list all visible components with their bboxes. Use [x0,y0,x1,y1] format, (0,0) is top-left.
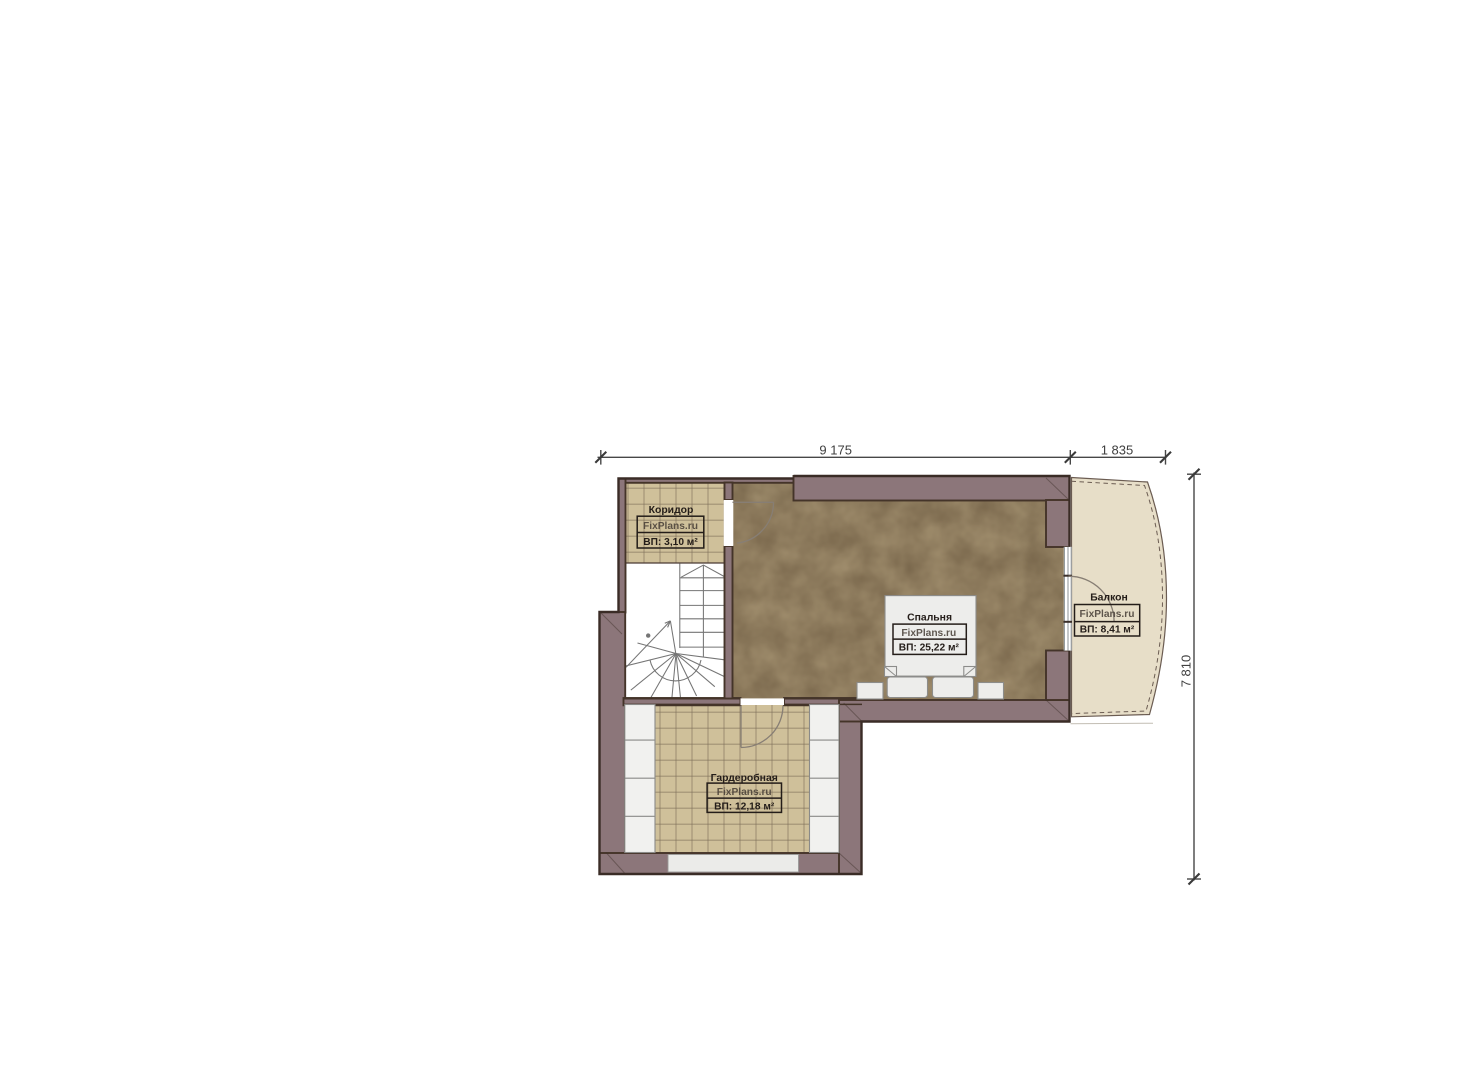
svg-text:FixPlans.ru: FixPlans.ru [901,628,956,639]
svg-text:Балкон: Балкон [1090,593,1128,604]
svg-text:ВП: 3,10 м²: ВП: 3,10 м² [643,537,698,548]
svg-text:Коридор: Коридор [649,505,694,516]
svg-text:Спальня: Спальня [907,613,952,624]
svg-text:9 175: 9 175 [819,443,852,458]
svg-text:FixPlans.ru: FixPlans.ru [643,521,698,532]
svg-text:FixPlans.ru: FixPlans.ru [717,787,772,798]
svg-text:ВП: 8,41 м²: ВП: 8,41 м² [1080,625,1135,636]
svg-text:FixPlans.ru: FixPlans.ru [1080,609,1135,620]
svg-text:7 810: 7 810 [1179,655,1194,688]
svg-text:ВП: 25,22 м²: ВП: 25,22 м² [899,643,960,654]
svg-text:ВП: 12,18 м²: ВП: 12,18 м² [714,801,775,812]
svg-text:Гардеробная: Гардеробная [711,772,778,784]
svg-text:1 835: 1 835 [1101,443,1134,458]
